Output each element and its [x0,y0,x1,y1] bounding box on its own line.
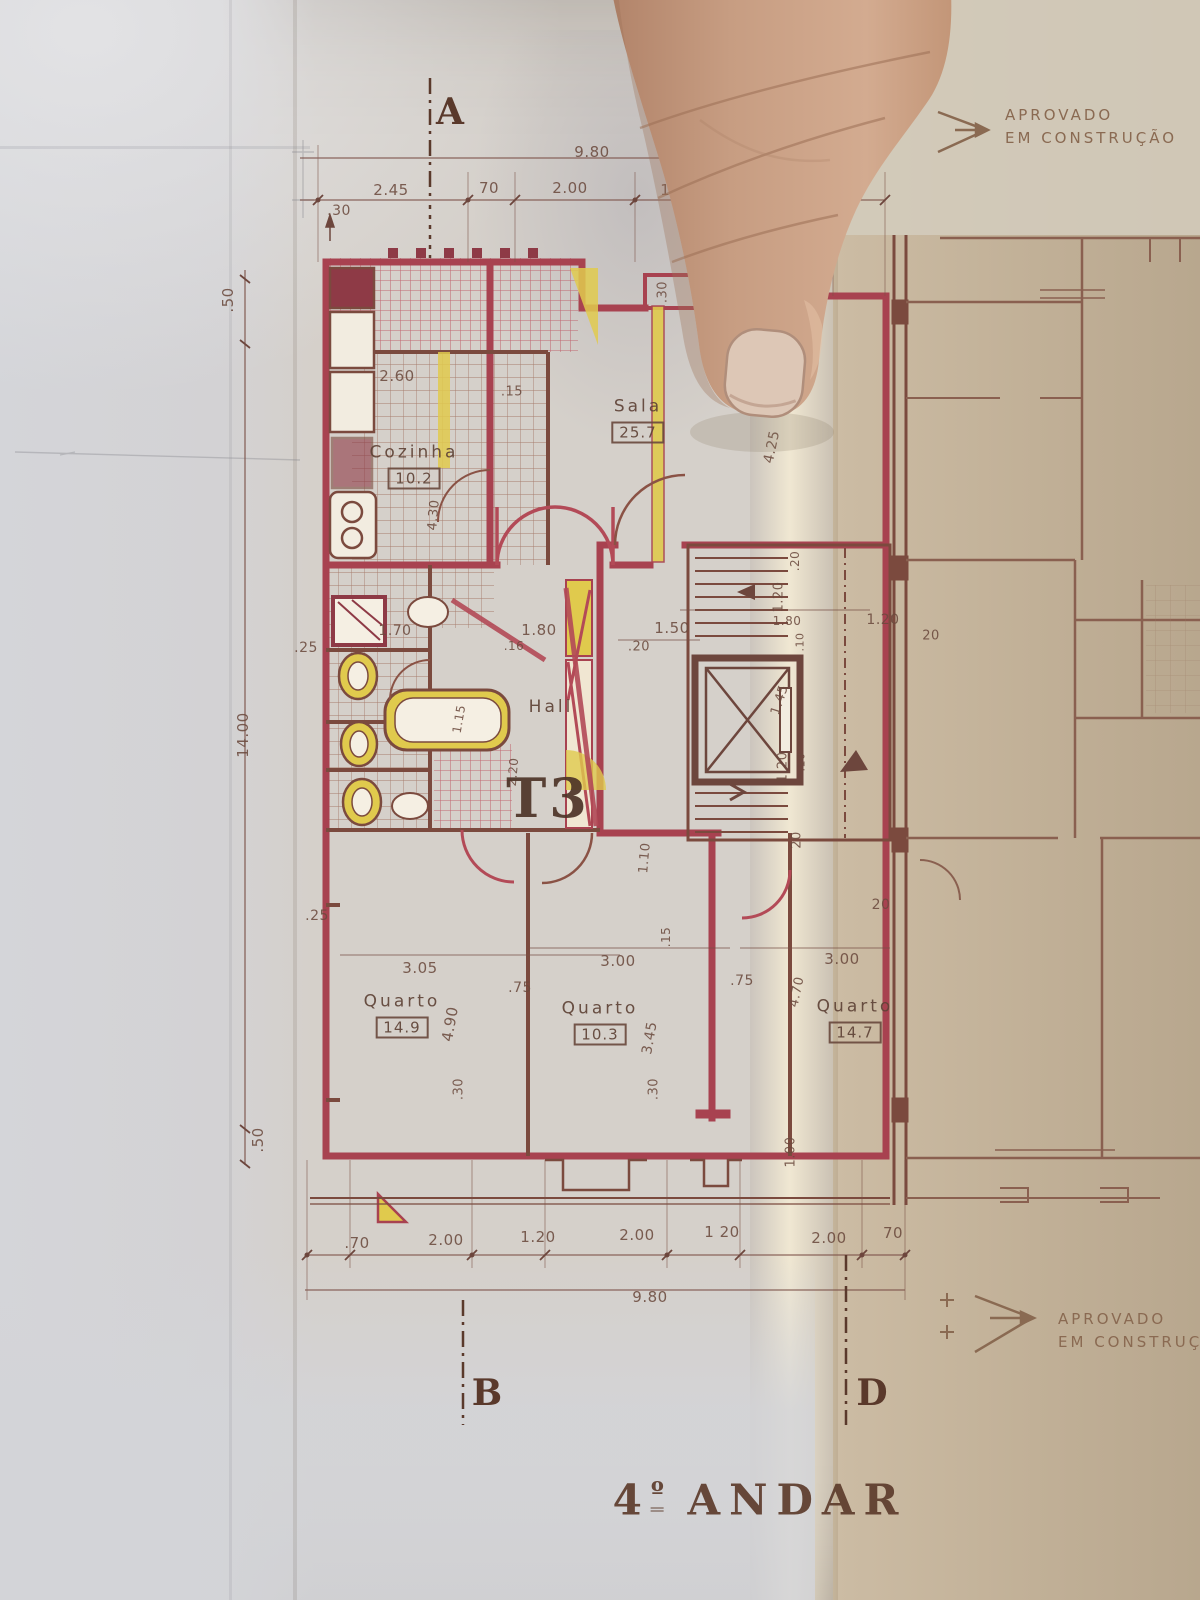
dimension-label: .25 [305,908,329,924]
dimension-label: 2.00 [552,179,587,197]
section-marker-a: A [436,91,464,133]
floor-title: 4º ANDAR [613,1476,908,1525]
dimension-label: .30 [656,281,671,303]
dimension-label: 1.80 [773,614,802,628]
dimension-label: .15 [501,385,523,400]
room-label-hall: Hall [529,697,574,717]
dimension-label: 9.80 [574,143,609,161]
dimension-label: 1.10 [636,842,654,874]
dimension-label: 9.80 [632,1288,667,1306]
room-label-quarto1: Quarto 14.9 [364,992,441,1039]
approval-line2: EM CONSTRUÇÃ [1058,1331,1200,1354]
room-name: Hall [529,697,574,717]
neighbor-unit [906,238,1200,1202]
dimension-label: 6.6 [704,362,728,378]
approval-arrows [938,112,1034,1352]
dimension-label: 1.50 [660,181,695,199]
dimension-label: 1.20 [776,752,791,783]
dimension-label: .30 [327,203,351,219]
dimension-label: .30 [647,1078,662,1100]
dimension-label: 1.20 [772,582,787,613]
room-name: Sala [611,397,664,417]
dimension-label: 20 [872,897,891,913]
dimension-label: 1.20 [520,1228,555,1246]
dimension-label: 3.05 [402,959,437,977]
dimension-label: .25 [294,640,318,656]
dimension-label: 4.30 [425,499,443,531]
room-name: Quarto [364,992,441,1012]
dimension-label: .70 [344,1234,369,1252]
dimension-label: .50 [219,287,237,312]
floor-ordinal: º [651,1478,664,1512]
unit-type-stamp: T3 [506,766,590,830]
room-area: 10.2 [387,468,440,490]
approval-note-bottom: APROVADO EM CONSTRUÇÃ [1058,1308,1200,1354]
room-area: 25.7 [611,422,664,444]
dimension-label: 3.00 [600,952,635,970]
floor-plan-drawing [0,0,1200,1600]
dimension-label: 20 [790,831,805,849]
room-name: Quarto [562,999,639,1019]
room-area: 14.7 [828,1022,881,1044]
dimension-label: 1.70 [378,623,411,639]
dimension-label: .20 [788,551,802,572]
pencil-guide-marks [15,140,314,460]
party-wall [892,235,908,1205]
room-name: Quarto [817,997,894,1017]
blueprint-photo: 9.80.302.45702.001.5085.5014.00.25.25.50… [0,0,1200,1600]
dimension-label: 70 [883,1224,903,1242]
dimension-label: .15 [659,927,673,948]
dimension-label: 2.00 [619,1226,654,1244]
dimension-label: .10 [794,633,807,652]
dimension-label: 14.00 [234,712,252,757]
dimension-label: 20 [922,629,940,644]
dimension-label: 70 [479,179,499,197]
dimension-label: .75 [730,973,754,989]
balcony-rail [310,1160,890,1204]
approval-line1: APROVADO [1058,1308,1200,1331]
floor-number: 4 [613,1476,651,1525]
room-label-sala: Sala 25.7 [611,397,664,444]
dimension-label: .75 [508,980,532,996]
section-marker-d: D [856,1372,887,1414]
dimension-label: 1.00 [784,1137,799,1168]
room-label-quarto3: Quarto 14.7 [817,997,894,1044]
room-area: 10.3 [573,1024,626,1046]
room-label-cozinha: Cozinha 10.2 [370,443,459,490]
room-label-quarto2: Quarto 10.3 [562,999,639,1046]
dimension-label: 2.00 [811,1229,846,1247]
dimension-label: 1.50 [654,619,689,637]
dimension-label: 85 [839,180,859,198]
dimension-label: 1.20 [866,612,899,628]
approval-line2: EM CONSTRUÇÃO [1005,127,1177,150]
dimension-label: .50 [249,1127,267,1152]
approval-note-top: APROVADO EM CONSTRUÇÃO [1005,104,1177,150]
dimension-label: 2.60 [379,367,414,385]
section-marker-b: B [472,1372,502,1414]
dimension-label: .16 [504,639,525,653]
room-name: Cozinha [370,443,459,463]
dimension-label: .10 [795,753,808,772]
floor-word: ANDAR [687,1476,907,1525]
dimension-label: 2.00 [428,1231,463,1249]
dimension-label: 1.80 [521,621,556,639]
kitchen-counter [330,268,376,558]
dimension-label: 3.00 [824,950,859,968]
dimension-label: 1 20 [704,1223,739,1241]
dimension-label: .20 [628,640,650,655]
dimension-label: 2.45 [373,181,408,199]
approval-line1: APROVADO [1005,104,1177,127]
room-area: 14.9 [375,1017,428,1039]
dimension-label: .30 [452,1078,467,1100]
